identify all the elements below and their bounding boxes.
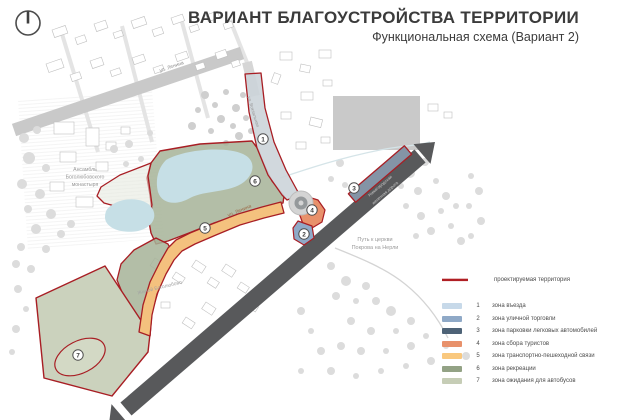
legend-boundary-label: проектируемая территория — [494, 277, 570, 283]
large-building — [333, 96, 420, 150]
church-path-label: Путь к церкви — [357, 237, 392, 243]
marker-3: 3 — [349, 183, 359, 193]
header: ВАРИАНТ БЛАГОУСТРОЙСТВА ТЕРРИТОРИИ Функц… — [188, 8, 579, 44]
legend-swatch-6 — [442, 366, 464, 372]
legend-swatch-2 — [442, 316, 464, 322]
legend-boundary-item: проектируемая территория — [442, 277, 614, 283]
legend-swatch-3 — [442, 328, 464, 334]
legend-item-7: 7 зона ожидания для автобусов — [442, 375, 614, 388]
legend-label-2: зона уличной торговли — [492, 316, 614, 322]
page-subtitle: Функциональная схема (Вариант 2) — [188, 30, 579, 44]
boundary-line-swatch — [442, 278, 468, 282]
legend-item-3: 3 зона парковки легковых автомобилей — [442, 325, 614, 338]
legend-num-6: 6 — [470, 366, 486, 372]
legend-label-3: зона парковки легковых автомобилей — [492, 328, 614, 334]
legend-swatch-1 — [442, 303, 464, 309]
marker-6: 6 — [250, 176, 260, 186]
marker-2: 2 — [299, 229, 309, 239]
legend-label-6: зона рекреации — [492, 366, 614, 372]
legend-item-5: 5 зона транспортно-пешеходной связи — [442, 350, 614, 363]
svg-text:1: 1 — [261, 136, 265, 143]
svg-text:6: 6 — [253, 178, 257, 185]
svg-text:Боголюбовского: Боголюбовского — [66, 175, 105, 181]
legend-item-6: 6 зона рекреации — [442, 363, 614, 376]
svg-text:3: 3 — [352, 185, 356, 192]
marker-4: 4 — [307, 205, 317, 215]
legend-label-5: зона транспортно-пешеходной связи — [492, 353, 614, 359]
legend-swatch-5 — [442, 353, 464, 359]
svg-text:4: 4 — [310, 207, 314, 214]
svg-text:7: 7 — [76, 352, 80, 359]
marker-1: 1 — [258, 134, 268, 144]
legend-num-4: 4 — [470, 341, 486, 347]
legend-num-7: 7 — [470, 378, 486, 384]
legend-num-2: 2 — [470, 316, 486, 322]
legend-num-1: 1 — [470, 303, 486, 309]
north-indicator — [12, 6, 46, 45]
page-title: ВАРИАНТ БЛАГОУСТРОЙСТВА ТЕРРИТОРИИ — [188, 8, 579, 28]
legend-label-7: зона ожидания для автобусов — [492, 378, 614, 384]
legend-item-4: 4 зона сбора туристов — [442, 338, 614, 351]
svg-text:2: 2 — [302, 231, 306, 238]
svg-text:монастыря: монастыря — [72, 182, 99, 188]
legend: проектируемая территория 1 зона въезда 2… — [442, 277, 614, 388]
monastery-label: Ансамбль — [73, 167, 97, 173]
svg-text:5: 5 — [203, 225, 207, 232]
legend-swatch-4 — [442, 341, 464, 347]
legend-label-4: зона сбора туристов — [492, 341, 614, 347]
legend-swatch-7 — [442, 378, 464, 384]
marker-5: 5 — [200, 223, 210, 233]
legend-item-1: 1 зона въезда — [442, 300, 614, 313]
svg-text:Покрова на Нерли: Покрова на Нерли — [352, 245, 399, 251]
north-arrow-icon — [12, 6, 46, 40]
legend-item-2: 2 зона уличной торговли — [442, 313, 614, 326]
marker-7: 7 — [73, 350, 83, 360]
legend-num-5: 5 — [470, 353, 486, 359]
legend-num-3: 3 — [470, 328, 486, 334]
legend-label-1: зона въезда — [492, 303, 614, 309]
